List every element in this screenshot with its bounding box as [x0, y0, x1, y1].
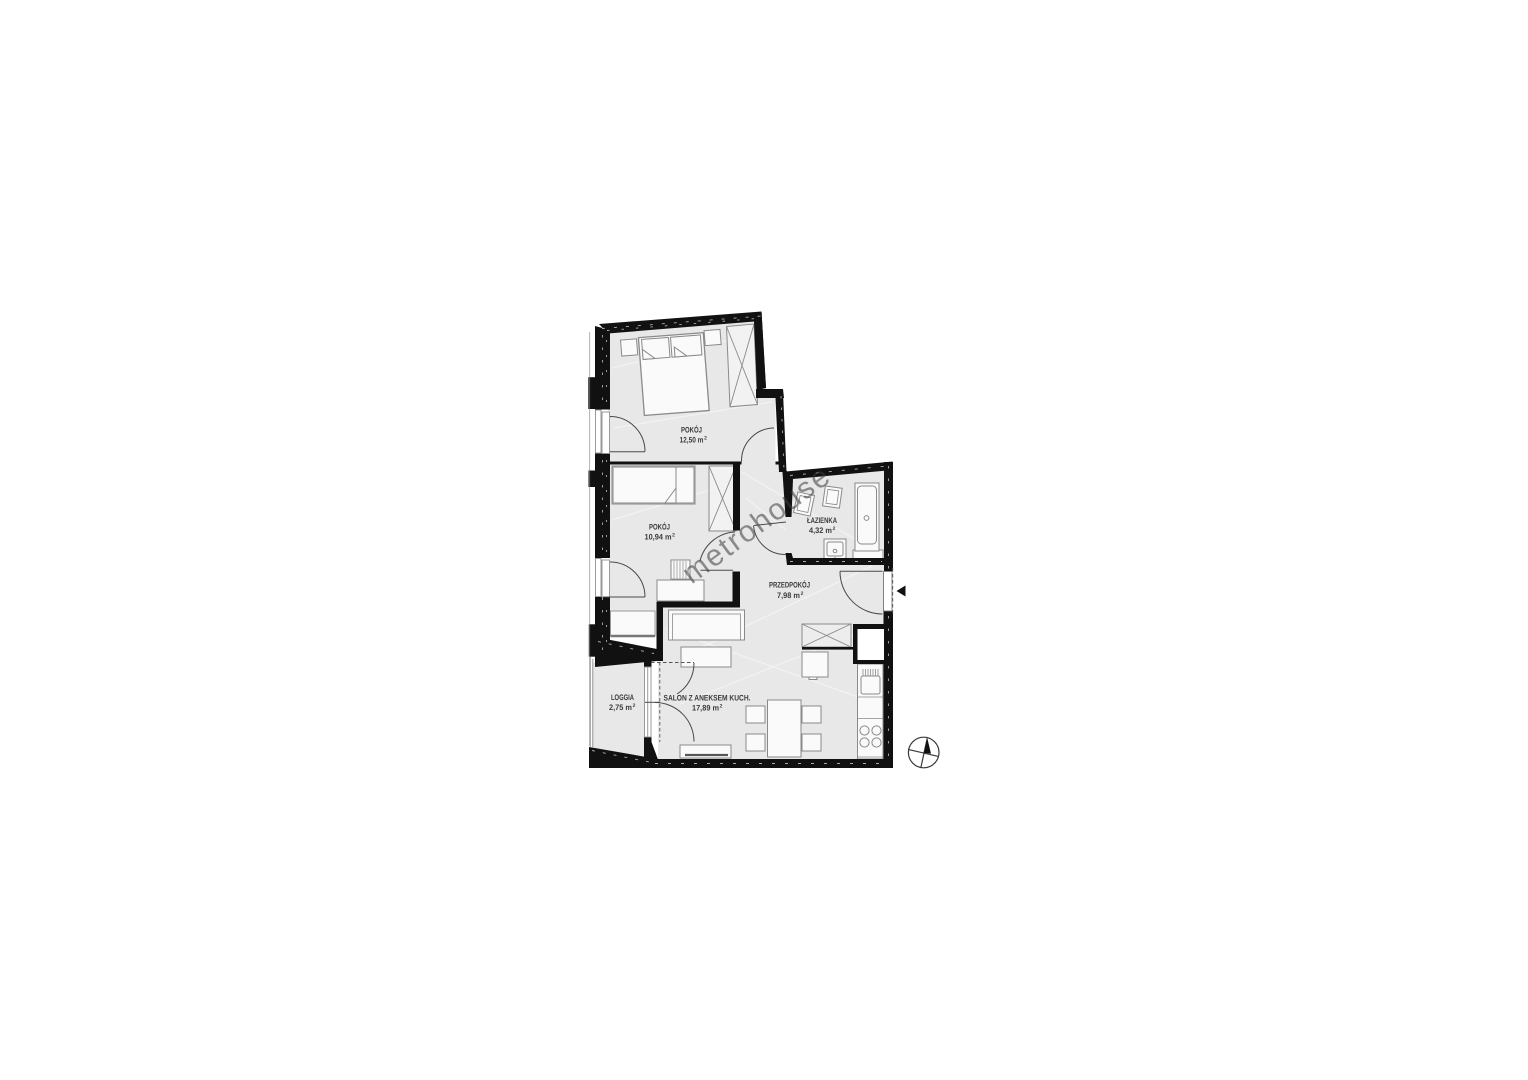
svg-text:12,50 m: 12,50 m: [680, 436, 704, 445]
svg-text:LOGGIA: LOGGIA: [611, 693, 634, 702]
svg-text:2: 2: [704, 436, 707, 442]
svg-text:2: 2: [720, 704, 723, 710]
svg-text:2: 2: [672, 533, 675, 539]
svg-text:2: 2: [633, 703, 636, 709]
svg-text:PRZEDPOKÓJ: PRZEDPOKÓJ: [769, 580, 810, 590]
svg-text:POKÓJ: POKÓJ: [649, 522, 670, 532]
svg-text:7,98 m: 7,98 m: [777, 591, 800, 600]
svg-text:POKÓJ: POKÓJ: [681, 425, 702, 435]
svg-text:SALON Z ANEKSEM KUCH.: SALON Z ANEKSEM KUCH.: [664, 694, 751, 703]
svg-text:2,75 m: 2,75 m: [609, 703, 632, 712]
svg-text:2: 2: [801, 591, 804, 597]
svg-text:10,94 m: 10,94 m: [645, 533, 672, 542]
svg-text:ŁAZIENKA: ŁAZIENKA: [807, 516, 837, 525]
svg-text:4,32 m: 4,32 m: [809, 526, 832, 535]
svg-text:17,89 m: 17,89 m: [692, 704, 719, 713]
svg-text:2: 2: [833, 526, 836, 532]
